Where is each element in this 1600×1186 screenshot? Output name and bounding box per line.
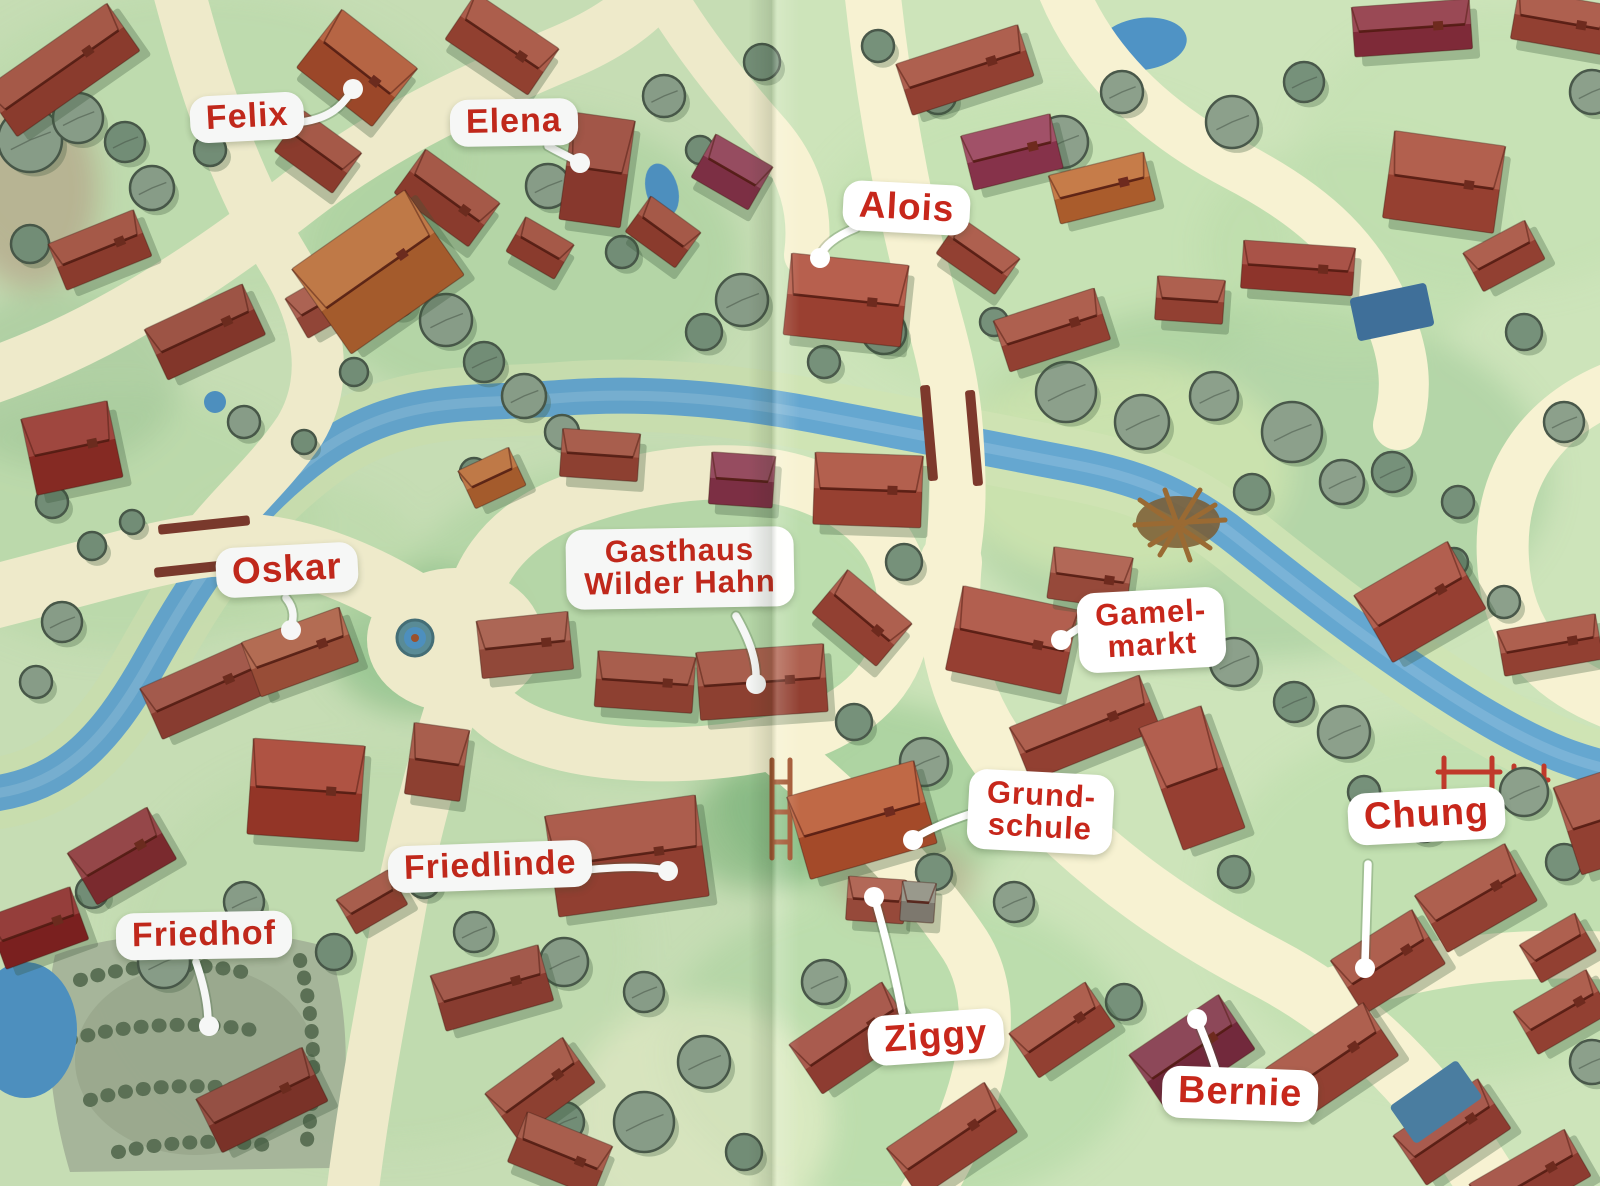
label-text: Friedlinde bbox=[403, 843, 577, 887]
house bbox=[1351, 0, 1480, 67]
map-label-elena: Elena bbox=[450, 98, 579, 148]
label-text: Chung bbox=[1363, 790, 1490, 838]
map-label-alois: Alois bbox=[842, 180, 972, 237]
house bbox=[559, 428, 648, 492]
map-label-grundschule: Grund- schule bbox=[966, 768, 1115, 856]
house bbox=[1381, 131, 1512, 245]
house bbox=[782, 253, 916, 358]
label-text: Friedhof bbox=[132, 914, 277, 955]
house bbox=[1154, 276, 1233, 335]
map-label-chung: Chung bbox=[1347, 786, 1507, 846]
label-text-line2: markt bbox=[1096, 626, 1209, 664]
house bbox=[696, 643, 836, 730]
label-text: Oskar bbox=[231, 545, 343, 592]
map-label-oskar: Oskar bbox=[215, 541, 359, 599]
house bbox=[403, 722, 477, 812]
label-text-line2: Wilder Hahn bbox=[584, 566, 776, 602]
map-label-gasthaus-wilder-hahn: Gasthaus Wilder Hahn bbox=[565, 526, 794, 610]
map-label-bernie: Bernie bbox=[1161, 1065, 1319, 1122]
map-label-gamelmarkt: Gamel- markt bbox=[1076, 586, 1227, 674]
house bbox=[246, 738, 372, 852]
storybook-map-spread: Felix Elena Alois Oskar Gasthaus Wilder … bbox=[0, 0, 1600, 1186]
house bbox=[708, 452, 783, 519]
map-label-ziggy: Ziggy bbox=[866, 1007, 1005, 1067]
map-label-friedlinde: Friedlinde bbox=[387, 839, 593, 893]
house bbox=[593, 651, 702, 724]
label-text-line2: schule bbox=[984, 808, 1095, 846]
map-label-felix: Felix bbox=[189, 91, 306, 144]
fountain bbox=[397, 620, 433, 656]
label-text: Elena bbox=[466, 101, 562, 141]
label-text: Felix bbox=[205, 95, 289, 137]
map-label-friedhof: Friedhof bbox=[116, 910, 293, 960]
house bbox=[476, 611, 582, 689]
house bbox=[1240, 240, 1363, 306]
house bbox=[812, 452, 930, 538]
label-text: Ziggy bbox=[883, 1011, 989, 1059]
label-text: Bernie bbox=[1177, 1069, 1303, 1115]
label-text: Alois bbox=[858, 184, 955, 230]
